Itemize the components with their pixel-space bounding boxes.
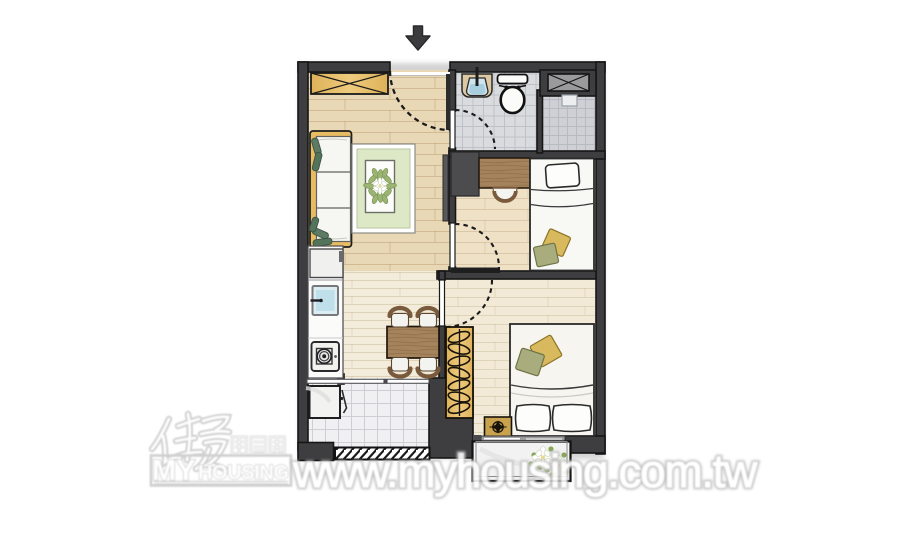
svg-text:HOUSING: HOUSING <box>198 462 289 484</box>
svg-text:MY: MY <box>152 455 196 487</box>
svg-text:www.myhousing.com.tw: www.myhousing.com.tw <box>292 445 758 497</box>
